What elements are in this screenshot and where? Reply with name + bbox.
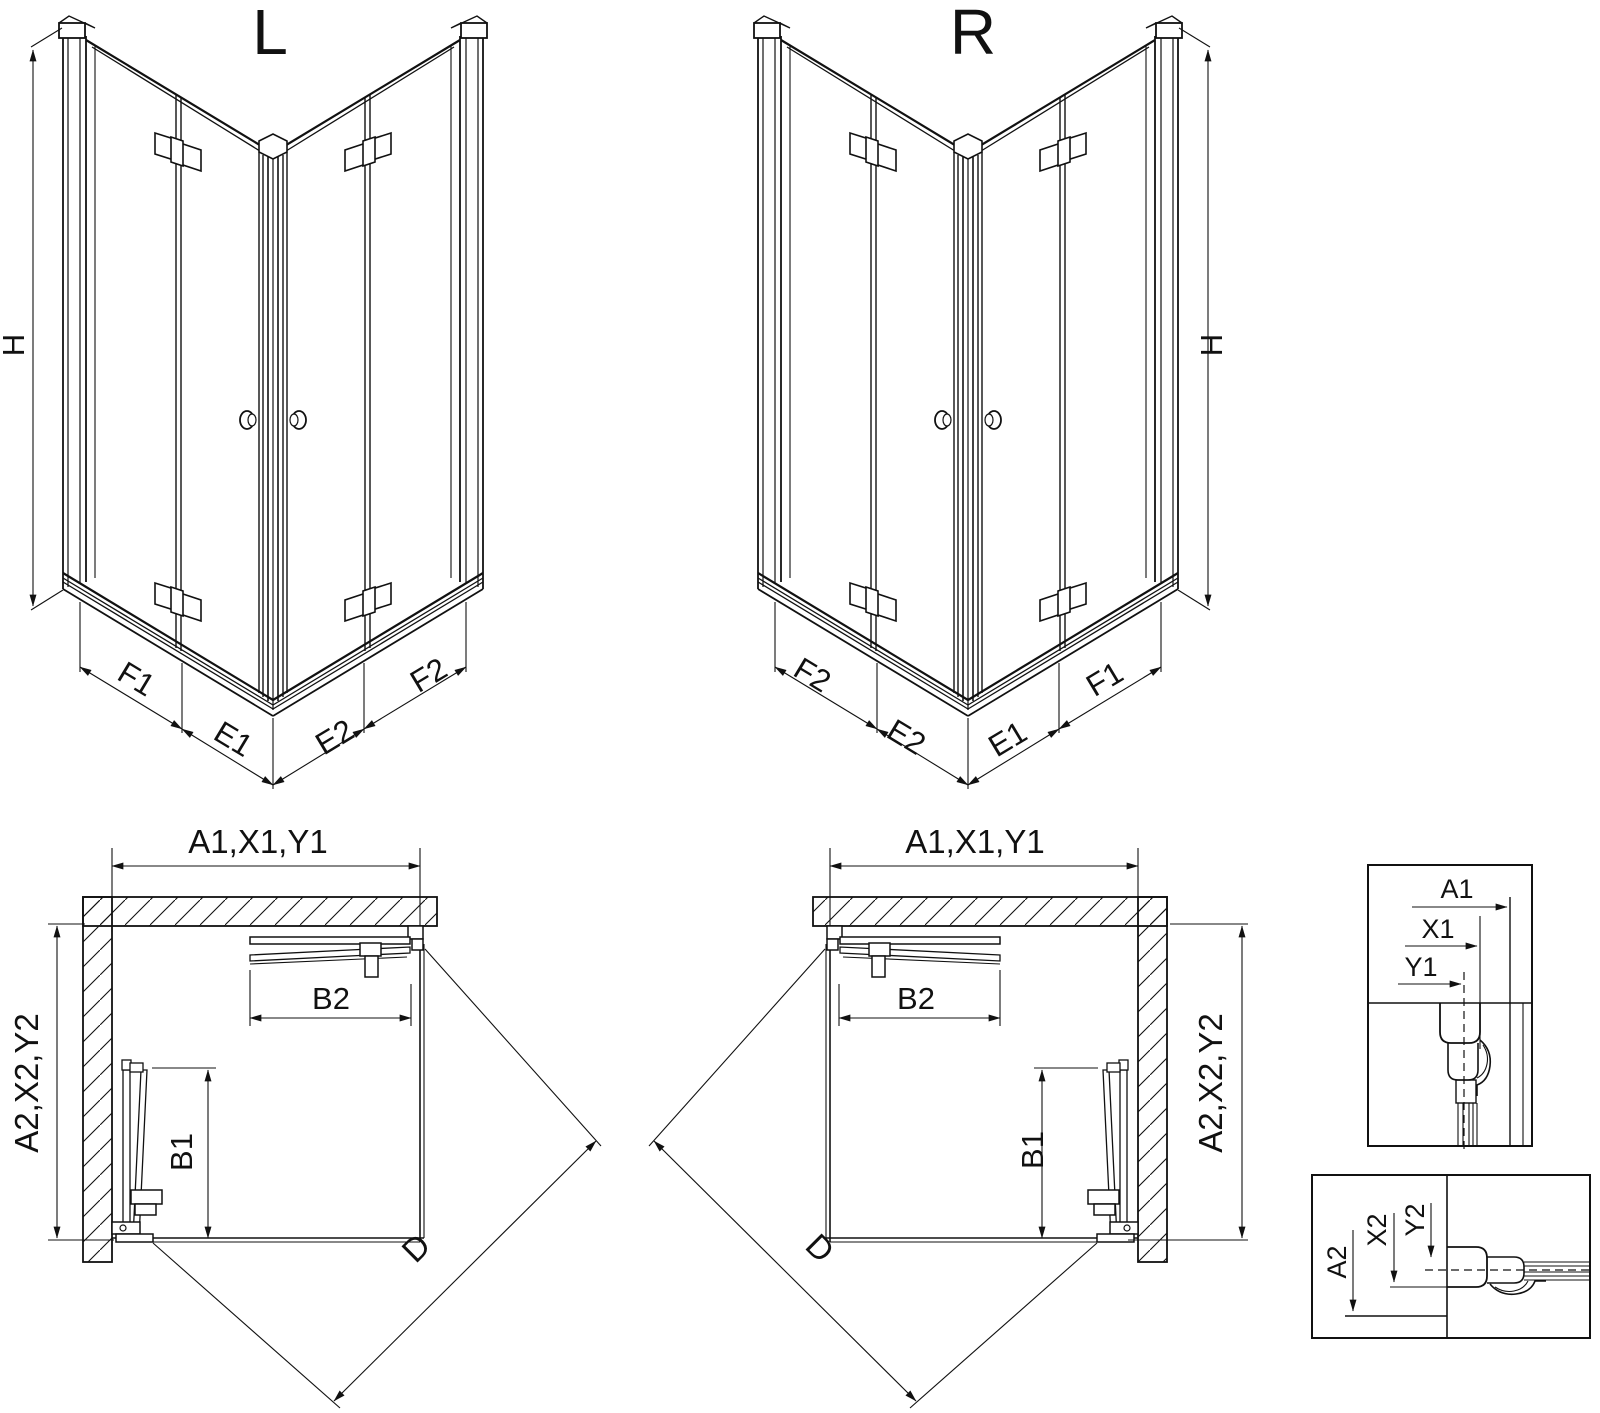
iso-left-dim-e1-label: E1 bbox=[208, 714, 259, 764]
plan-left-depth-dim-label: A2,X2,Y2 bbox=[8, 1013, 45, 1152]
iso-right-dim-f1-label: F1 bbox=[1080, 655, 1129, 704]
technical-drawing-canvas: L H F1 E1 E2 F2 R H F2 E2 E1 F1 A1,X1,Y1… bbox=[0, 0, 1600, 1413]
plan-right-view: A1,X1,Y1 A2,X2,Y2 B2 B1 D bbox=[649, 823, 1248, 1408]
plan-left-diagonal-dim-label: D bbox=[394, 1226, 437, 1269]
iso-left-height-dim-label: H bbox=[0, 334, 31, 356]
iso-left-dim-f1-label: F1 bbox=[112, 655, 161, 704]
plan-right-door-side-dim-label: B1 bbox=[1015, 1131, 1050, 1169]
plan-right-width-dim-label: A1,X1,Y1 bbox=[905, 823, 1044, 860]
detail-a2-frame bbox=[1312, 1175, 1590, 1338]
iso-right-view: R H F2 E2 E1 F1 bbox=[754, 0, 1229, 789]
plan-right-wall-side bbox=[1138, 897, 1167, 1262]
iso-right-dim-e2-label: E2 bbox=[881, 712, 932, 762]
plan-right-depth-dim-label: A2,X2,Y2 bbox=[1192, 1013, 1229, 1152]
detail-a1-dim-y1-label: Y1 bbox=[1404, 952, 1437, 982]
plan-left-width-dim-label: A1,X1,Y1 bbox=[188, 823, 327, 860]
plan-left-wall-top bbox=[83, 897, 437, 926]
plan-right-door-top-dim-label: B2 bbox=[897, 981, 935, 1016]
plan-right-wall-top bbox=[813, 897, 1167, 926]
detail-a2-dim-y2-label: Y2 bbox=[1400, 1203, 1430, 1236]
detail-a2-view: A2 X2 Y2 bbox=[1312, 1175, 1590, 1338]
plan-left-wall-side bbox=[83, 897, 112, 1262]
iso-left-view: L H F1 E1 E2 F2 bbox=[0, 0, 487, 789]
detail-a1-dim-x1-label: X1 bbox=[1421, 914, 1454, 944]
iso-right-height-dim-label: H bbox=[1194, 334, 1229, 356]
plan-left-door-side-dim-label: B1 bbox=[164, 1133, 199, 1171]
iso-left-dim-e2-label: E2 bbox=[309, 712, 360, 762]
iso-left-dim-f2-label: F2 bbox=[404, 651, 453, 700]
iso-left-title-label: L bbox=[252, 0, 288, 68]
plan-right-diagonal-dim-label: D bbox=[799, 1226, 842, 1269]
detail-a1-view: A1 X1 Y1 bbox=[1368, 865, 1532, 1150]
plan-left-view: A1,X1,Y1 A2,X2,Y2 B2 B1 D bbox=[8, 823, 601, 1408]
plan-left-door-top-dim-label: B2 bbox=[312, 981, 350, 1016]
detail-a1-dim-a1-label: A1 bbox=[1440, 874, 1473, 904]
iso-right-title-label: R bbox=[950, 0, 996, 68]
detail-a2-dim-a2-label: A2 bbox=[1322, 1245, 1352, 1278]
detail-a2-dim-x2-label: X2 bbox=[1362, 1213, 1392, 1246]
iso-right-dim-e1-label: E1 bbox=[982, 714, 1033, 764]
iso-right-dim-f2-label: F2 bbox=[788, 651, 837, 700]
